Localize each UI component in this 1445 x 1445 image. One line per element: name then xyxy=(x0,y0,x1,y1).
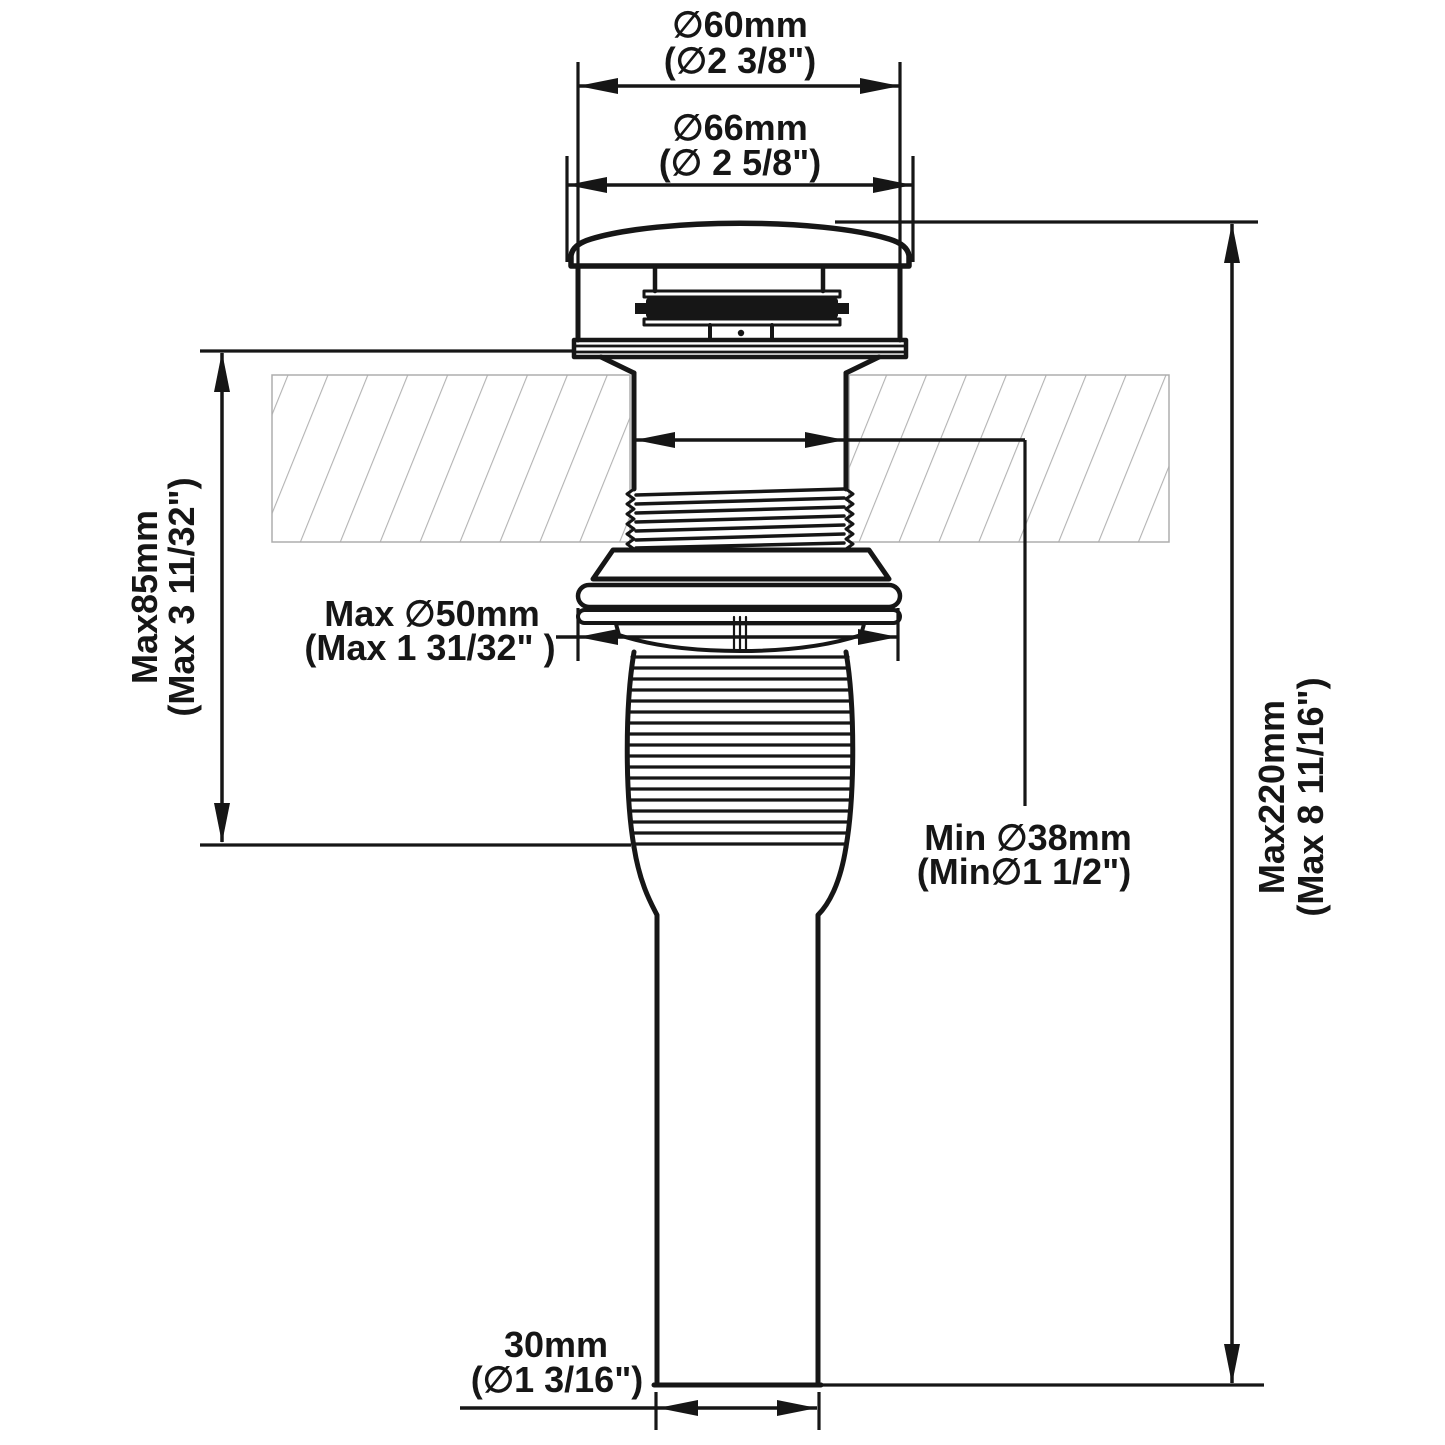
fine-thread-edge-left xyxy=(627,652,634,847)
dim-label-metric: ∅60mm xyxy=(672,4,807,45)
dim-label-imperial: (Max 8 11/16") xyxy=(1290,677,1331,916)
dim-label-imperial: (Max 3 11/32") xyxy=(161,477,202,716)
tailpiece xyxy=(634,847,846,1385)
friction-washer xyxy=(578,585,900,607)
coarse-thread-line xyxy=(636,498,844,504)
pivot-dot xyxy=(738,330,744,336)
arrowhead-right xyxy=(777,1400,817,1416)
dim-cap-outer-diameter: ∅66mm (∅ 2 5/8") xyxy=(567,107,913,262)
arrowhead-left xyxy=(578,629,618,645)
dim-label-imperial: (∅ 2 5/8") xyxy=(659,142,821,183)
arrowhead-up xyxy=(214,352,230,392)
fine-thread-edge-right xyxy=(846,652,853,847)
coarse-thread-line xyxy=(636,543,844,548)
cap-dome xyxy=(571,223,909,266)
dim-tailpiece-diameter: 30mm (∅1 3/16") xyxy=(460,1324,819,1430)
arrowhead-left xyxy=(658,1400,698,1416)
countertop-hatch-left xyxy=(272,375,630,542)
taper-right xyxy=(818,847,846,925)
gasket-bottom-ring xyxy=(644,319,840,325)
locknut xyxy=(593,550,889,579)
dim-label-imperial: (Max 1 31/32" ) xyxy=(304,627,555,668)
arrowhead-right xyxy=(805,432,845,448)
coarse-thread-line xyxy=(636,507,844,513)
flange-taper-right xyxy=(846,357,879,373)
dim-label-metric: Max85mm xyxy=(124,510,165,684)
countertop-section xyxy=(272,375,1169,542)
arrowhead-left xyxy=(578,78,618,94)
fine-thread-lines xyxy=(628,657,852,844)
arrowhead-right xyxy=(860,78,900,94)
arrowhead-left xyxy=(635,432,675,448)
technical-drawing-page: ∅60mm (∅2 3/8") ∅66mm (∅ 2 5/8") Max85mm… xyxy=(0,0,1445,1445)
gasket-tab-right xyxy=(838,303,849,314)
flange-taper-left xyxy=(601,357,634,373)
flange-outline xyxy=(574,340,906,357)
cap-underside xyxy=(635,268,849,340)
coarse-threads xyxy=(627,489,853,549)
arrowhead-right xyxy=(873,177,913,193)
arrowhead-right xyxy=(858,629,898,645)
drain-dimension-diagram: ∅60mm (∅2 3/8") ∅66mm (∅ 2 5/8") Max85mm… xyxy=(0,0,1445,1445)
coarse-thread-line xyxy=(636,516,844,522)
dimensions: ∅60mm (∅2 3/8") ∅66mm (∅ 2 5/8") Max85mm… xyxy=(124,4,1331,1430)
rubber-gasket xyxy=(646,298,838,318)
dim-label-imperial: (∅2 3/8") xyxy=(664,40,816,81)
coarse-thread-line xyxy=(636,489,844,495)
arrowhead-down xyxy=(214,803,230,843)
sink-flange xyxy=(574,340,906,357)
taper-left xyxy=(634,847,657,925)
fine-threads xyxy=(627,652,853,847)
arrowhead-left xyxy=(567,177,607,193)
countertop-hatch-right xyxy=(849,375,1169,542)
arrowhead-down xyxy=(1224,1344,1240,1384)
coarse-thread-line xyxy=(636,525,844,531)
arrowhead-up xyxy=(1224,223,1240,263)
gasket-tab-left xyxy=(635,303,646,314)
coarse-thread-line xyxy=(636,534,844,540)
dim-label-imperial: (Min∅1 1/2") xyxy=(917,851,1131,892)
gasket-top-ring xyxy=(644,291,840,297)
drain-neck xyxy=(601,357,879,489)
dim-label-metric: Max220mm xyxy=(1251,700,1292,894)
dim-label-imperial: (∅1 3/16") xyxy=(471,1359,644,1400)
